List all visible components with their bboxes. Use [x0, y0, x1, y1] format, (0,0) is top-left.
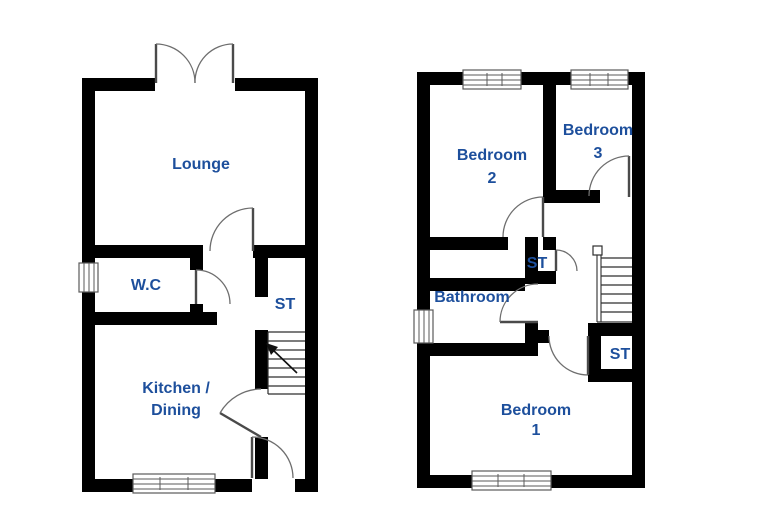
room-label-lounge: Lounge: [172, 156, 230, 173]
landing-st-door: [556, 250, 577, 271]
room-label-wc: W.C: [131, 277, 162, 294]
french-doors: [156, 44, 233, 83]
bedroom1-window: [472, 471, 551, 490]
side-window: [79, 263, 98, 292]
bathroom-window: [414, 310, 433, 343]
ground-floor-plan: Lounge W.C ST Kitchen / Dining: [79, 44, 318, 493]
kitchen-door: [220, 389, 261, 437]
bedroom1-door: [549, 336, 588, 375]
bedroom3-window: [571, 70, 628, 89]
first-floor-staircase: [593, 246, 632, 322]
floorplan-canvas: Lounge W.C ST Kitchen / Dining: [0, 0, 768, 517]
floorplan-drawing: Lounge W.C ST Kitchen / Dining: [0, 0, 768, 517]
room-label-bedroom2-line2: 2: [488, 170, 497, 187]
ground-floor-walls: [82, 78, 318, 492]
room-label-bedroom2-line1: Bedroom: [457, 147, 527, 164]
lounge-door: [210, 208, 253, 251]
room-label-bedroom1-line2: 1: [532, 422, 541, 439]
room-label-kitchen-line1: Kitchen /: [142, 380, 210, 397]
bedroom2-window: [463, 70, 521, 89]
room-label-bedroom3-line2: 3: [594, 145, 603, 162]
room-label-st-ground: ST: [275, 296, 296, 313]
first-floor-doors: [500, 156, 629, 375]
bedroom2-door: [503, 197, 543, 237]
room-label-bedroom3-line1: Bedroom: [563, 122, 633, 139]
room-label-kitchen-line2: Dining: [151, 402, 201, 419]
room-label-st-bedroom1: ST: [610, 346, 631, 363]
ground-floor-staircase: [266, 332, 305, 394]
wc-door: [196, 270, 230, 304]
first-floor-plan: Bedroom 2 Bedroom 3 Bathroom ST ST Bedro…: [414, 70, 645, 490]
ground-floor-windows: [79, 263, 215, 493]
room-label-bedroom1-line1: Bedroom: [501, 402, 571, 419]
room-label-bathroom: Bathroom: [434, 289, 510, 306]
kitchen-window: [133, 474, 215, 493]
room-label-st-landing: ST: [527, 255, 548, 272]
